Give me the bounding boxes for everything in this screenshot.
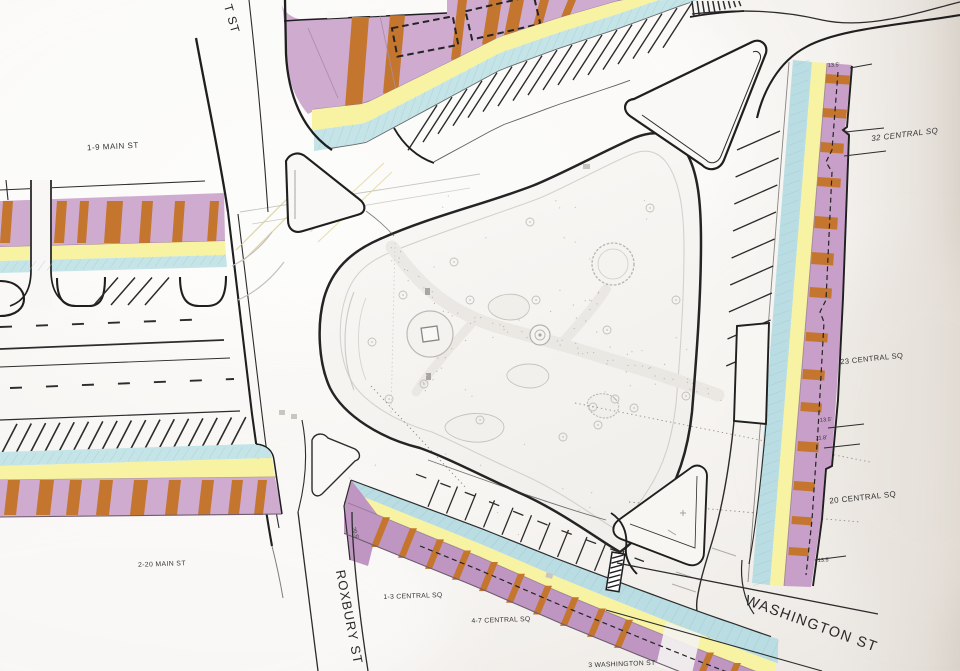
- svg-text:13.5': 13.5': [818, 557, 830, 564]
- svg-text:13.5': 13.5': [820, 417, 832, 424]
- svg-text:11.8': 11.8': [816, 435, 828, 442]
- svg-text:13.5': 13.5': [828, 62, 840, 69]
